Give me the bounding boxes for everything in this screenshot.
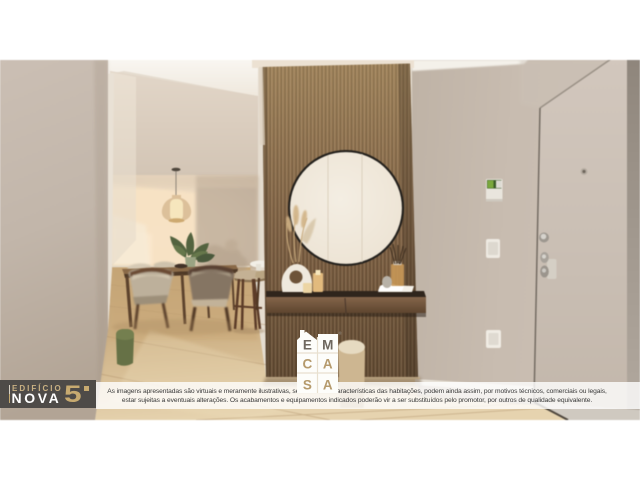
svg-text:E: E [303,338,312,353]
svg-text:A: A [323,378,333,393]
svg-text:C: C [303,357,313,372]
svg-text:®: ® [339,330,343,336]
svg-text:M: M [322,338,333,353]
svg-text:S: S [303,378,312,393]
svg-text:A: A [323,357,333,372]
